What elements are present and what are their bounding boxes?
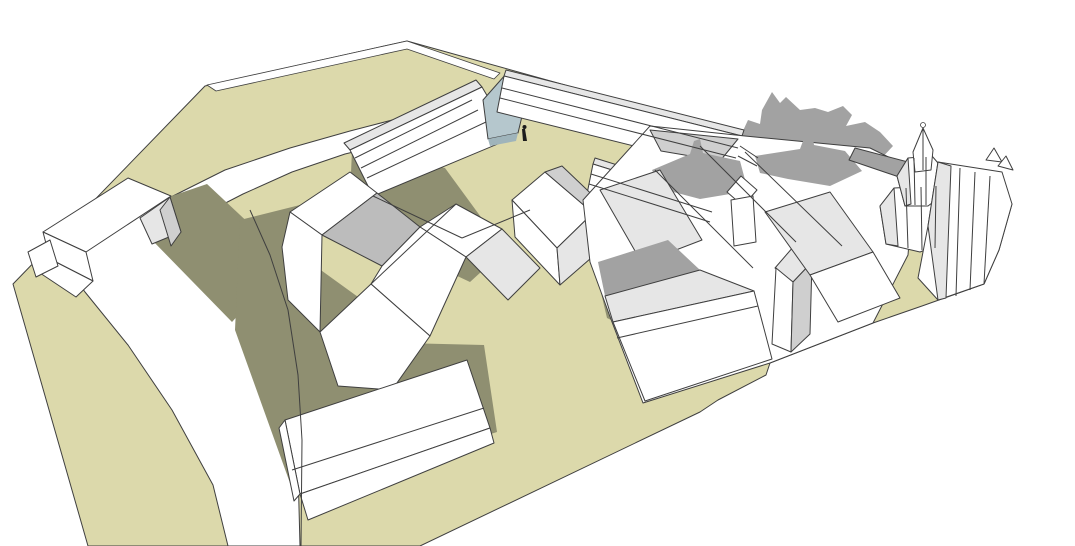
tower2-shaft [772, 268, 793, 352]
church-pinnacle-1 [986, 148, 1002, 162]
3d-model-viewport[interactable] [0, 0, 1075, 546]
spire-knob [921, 123, 926, 128]
scale-figure-head [523, 125, 527, 129]
massing-model-canvas[interactable] [0, 0, 1075, 546]
tower1-shaft [731, 196, 756, 246]
